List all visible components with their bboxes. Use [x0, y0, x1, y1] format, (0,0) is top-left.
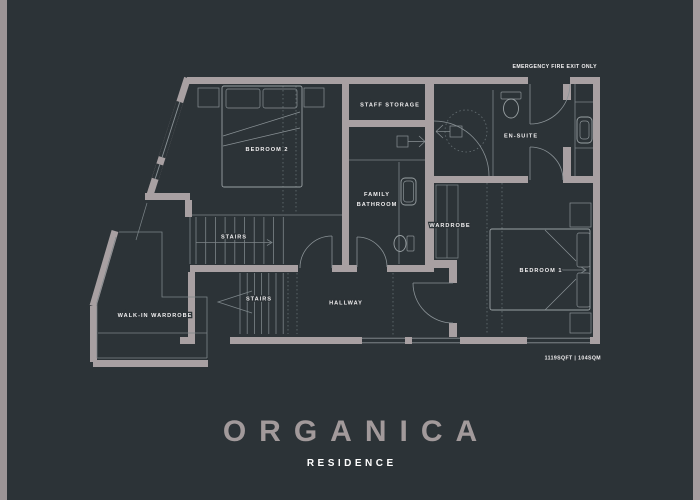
stairs-lower [218, 273, 297, 334]
vanity-basin-icon [575, 84, 593, 176]
double-bed-icon [222, 86, 302, 187]
bedroom-1-label: BEDROOM 1 [520, 268, 563, 274]
walls [90, 77, 600, 367]
walk-in-wardrobe-label: WALK-IN WARDROBE [118, 313, 193, 319]
stairs-upper [190, 215, 342, 264]
family-bathroom-label-line2: BATHROOM [357, 202, 398, 208]
nightstand-icon [570, 313, 591, 333]
property-title: ORGANICA [0, 416, 700, 448]
bedroom2-door-icon [300, 236, 332, 268]
stairs-lower-label: STAIRS [246, 297, 272, 303]
bed-direction-arrow-icon [562, 267, 586, 273]
bedroom-2-label: BEDROOM 2 [246, 147, 289, 153]
ensuite-door-icon [530, 147, 563, 180]
bathtub-icon [401, 178, 416, 205]
wardrobe-label: WARDROBE [429, 223, 470, 229]
stairs-upper-label: STAIRS [221, 235, 247, 241]
bathroom-door-icon [357, 237, 387, 267]
hallway-label: HALLWAY [329, 301, 363, 307]
family-bathroom-label-line1: FAMILY [364, 192, 390, 198]
toilet-icon [394, 236, 414, 252]
shower-head-icon [397, 136, 425, 147]
toilet-icon [501, 92, 521, 118]
bedroom1-door-icon [413, 283, 453, 323]
nightstand-icon [198, 88, 219, 107]
floor-area-label: 1119SQFT | 104SQM [545, 356, 601, 362]
shower-head-icon [436, 125, 462, 138]
emergency-exit-label: EMERGENCY FIRE EXIT ONLY [512, 64, 597, 70]
staff-storage-label: STAFF STORAGE [360, 103, 420, 109]
nightstand-icon [304, 88, 324, 107]
shower-screen-icon [434, 121, 489, 176]
nightstand-icon [570, 203, 591, 227]
diagonal-windows [155, 102, 180, 179]
floor-plan-image: EMERGENCY FIRE EXIT ONLY STAFF STORAGE E… [0, 0, 700, 500]
en-suite-label: EN-SUITE [504, 134, 538, 140]
property-subtitle: RESIDENCE [0, 457, 700, 471]
room-wardrobe [436, 183, 502, 335]
